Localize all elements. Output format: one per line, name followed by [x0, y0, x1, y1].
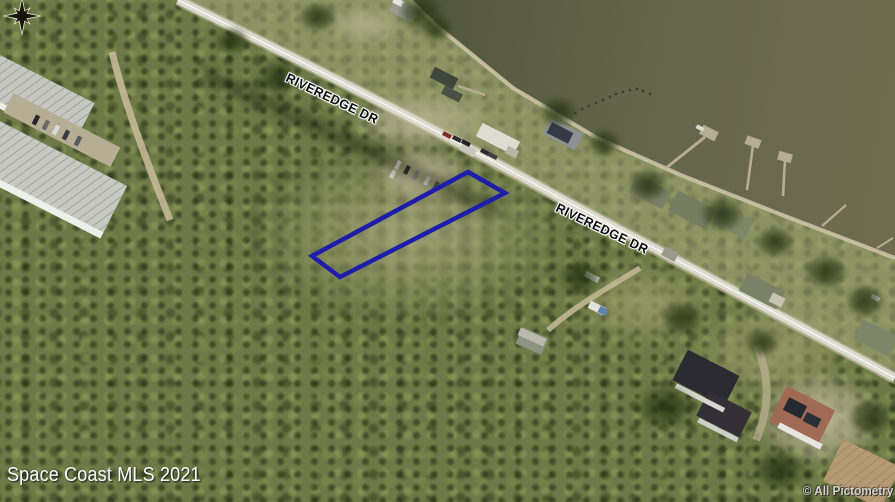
- mls-watermark: Space Coast MLS 2021: [7, 464, 201, 487]
- pictometry-copyright: © All Pictometry: [802, 484, 893, 498]
- parcel-layer: [0, 0, 895, 502]
- aerial-photo: RIVEREDGE DR RIVEREDGE DR Space Coast ML…: [0, 0, 895, 502]
- compass-rose-icon: [0, 0, 46, 40]
- parcel-outline: [312, 172, 505, 277]
